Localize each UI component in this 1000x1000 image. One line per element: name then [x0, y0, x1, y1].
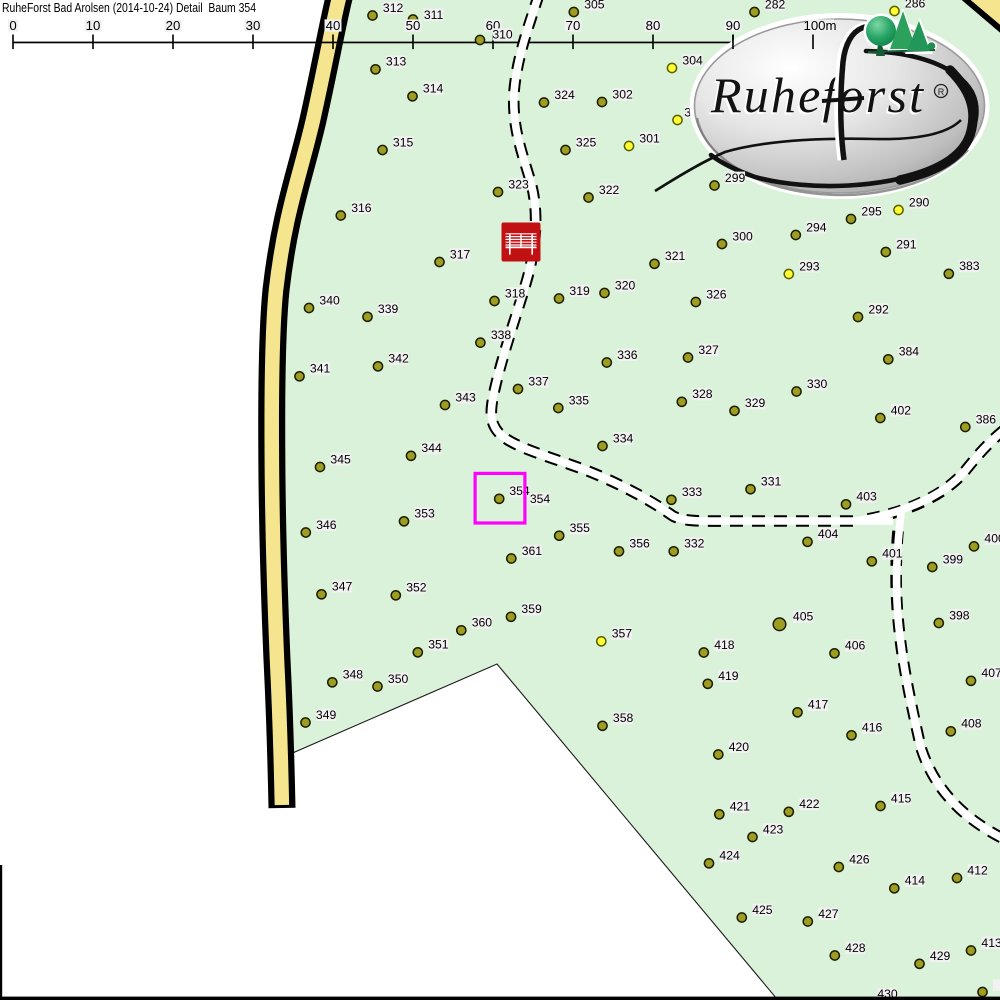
svg-text:330: 330 [807, 377, 828, 391]
svg-text:427: 427 [818, 907, 839, 921]
svg-text:337: 337 [528, 374, 549, 388]
svg-text:340: 340 [319, 293, 340, 307]
svg-text:314: 314 [423, 82, 444, 96]
svg-text:386: 386 [976, 412, 997, 426]
svg-text:412: 412 [967, 863, 988, 877]
svg-text:313: 313 [386, 55, 407, 69]
svg-text:299: 299 [725, 171, 746, 185]
svg-text:312: 312 [383, 1, 404, 15]
svg-text:319: 319 [569, 284, 590, 298]
svg-text:429: 429 [930, 949, 951, 963]
svg-text:356: 356 [629, 537, 650, 551]
svg-text:322: 322 [599, 183, 620, 197]
svg-text:357: 357 [612, 627, 633, 641]
svg-text:323: 323 [508, 177, 529, 191]
svg-text:100m: 100m [804, 18, 837, 33]
svg-text:90: 90 [726, 18, 741, 33]
svg-text:417: 417 [808, 698, 829, 712]
svg-text:293: 293 [799, 259, 820, 273]
svg-text:403: 403 [856, 490, 877, 504]
svg-text:342: 342 [388, 352, 409, 366]
svg-text:321: 321 [665, 249, 686, 263]
svg-text:384: 384 [899, 345, 920, 359]
svg-text:406: 406 [845, 639, 866, 653]
svg-text:10: 10 [86, 18, 101, 33]
svg-text:424: 424 [719, 849, 740, 863]
svg-text:332: 332 [684, 537, 705, 551]
svg-text:422: 422 [799, 797, 820, 811]
svg-text:302: 302 [612, 87, 633, 101]
svg-text:428: 428 [845, 941, 866, 955]
svg-text:358: 358 [613, 711, 634, 725]
svg-text:401: 401 [882, 547, 903, 561]
svg-text:354: 354 [509, 484, 530, 498]
svg-text:343: 343 [455, 390, 476, 404]
svg-text:320: 320 [615, 278, 636, 292]
svg-text:326: 326 [706, 287, 727, 301]
svg-text:328: 328 [692, 387, 713, 401]
svg-text:331: 331 [761, 475, 782, 489]
svg-text:416: 416 [862, 721, 883, 735]
svg-text:347: 347 [332, 580, 353, 594]
svg-text:291: 291 [896, 237, 917, 251]
svg-text:352: 352 [406, 581, 427, 595]
svg-text:324: 324 [554, 88, 575, 102]
svg-text:360: 360 [472, 616, 493, 630]
svg-text:325: 325 [576, 135, 597, 149]
svg-text:349: 349 [316, 708, 337, 722]
svg-text:30: 30 [246, 18, 261, 33]
svg-text:415: 415 [891, 791, 912, 805]
svg-text:0: 0 [9, 18, 16, 33]
svg-text:RuheForst Bad Arolsen (2014-10: RuheForst Bad Arolsen (2014-10-24) Detai… [2, 0, 256, 15]
svg-text:420: 420 [729, 740, 750, 754]
svg-text:402: 402 [891, 403, 912, 417]
svg-text:339: 339 [378, 302, 399, 316]
svg-text:346: 346 [316, 518, 337, 532]
svg-text:300: 300 [732, 229, 753, 243]
svg-text:354: 354 [530, 492, 551, 506]
svg-text:414: 414 [905, 874, 926, 888]
svg-text:20: 20 [166, 18, 181, 33]
svg-text:311: 311 [424, 8, 444, 22]
svg-text:405: 405 [793, 610, 814, 624]
svg-text:301: 301 [639, 131, 660, 145]
svg-text:336: 336 [617, 348, 638, 362]
svg-text:333: 333 [682, 485, 703, 499]
svg-text:338: 338 [491, 328, 512, 342]
svg-text:383: 383 [959, 259, 980, 273]
svg-text:335: 335 [569, 393, 590, 407]
svg-text:315: 315 [393, 135, 414, 149]
svg-text:310: 310 [492, 28, 513, 42]
svg-text:350: 350 [388, 672, 409, 686]
svg-text:329: 329 [745, 396, 766, 410]
svg-text:304: 304 [682, 53, 703, 67]
svg-text:423: 423 [763, 822, 784, 836]
svg-text:334: 334 [613, 431, 634, 445]
svg-text:R: R [938, 87, 945, 97]
svg-text:341: 341 [310, 362, 331, 376]
svg-text:351: 351 [428, 638, 449, 652]
svg-text:318: 318 [505, 286, 526, 300]
svg-text:348: 348 [343, 668, 364, 682]
svg-text:413: 413 [981, 936, 1000, 950]
svg-text:404: 404 [818, 527, 839, 541]
svg-text:418: 418 [714, 638, 735, 652]
svg-text:399: 399 [943, 552, 964, 566]
svg-text:40: 40 [326, 18, 341, 33]
svg-text:400: 400 [984, 532, 1000, 546]
svg-text:421: 421 [730, 800, 751, 814]
svg-text:294: 294 [806, 220, 827, 234]
svg-text:355: 355 [570, 521, 591, 535]
svg-text:345: 345 [330, 452, 351, 466]
svg-text:286: 286 [905, 0, 926, 10]
svg-text:419: 419 [718, 669, 739, 683]
svg-text:327: 327 [698, 343, 719, 357]
svg-text:316: 316 [351, 201, 372, 215]
svg-text:317: 317 [450, 247, 471, 261]
svg-text:407: 407 [981, 666, 1000, 680]
svg-text:295: 295 [861, 204, 882, 218]
svg-text:80: 80 [646, 18, 661, 33]
svg-text:425: 425 [752, 903, 773, 917]
svg-text:426: 426 [849, 852, 870, 866]
svg-text:353: 353 [414, 507, 435, 521]
svg-text:361: 361 [522, 544, 543, 558]
svg-text:50: 50 [406, 18, 421, 33]
svg-text:282: 282 [765, 0, 786, 11]
svg-text:398: 398 [949, 608, 970, 622]
svg-text:408: 408 [961, 717, 982, 731]
svg-text:292: 292 [868, 302, 889, 316]
svg-text:305: 305 [584, 0, 605, 11]
svg-text:359: 359 [521, 602, 542, 616]
svg-text:290: 290 [909, 195, 930, 209]
svg-text:344: 344 [421, 441, 442, 455]
svg-text:70: 70 [566, 18, 581, 33]
